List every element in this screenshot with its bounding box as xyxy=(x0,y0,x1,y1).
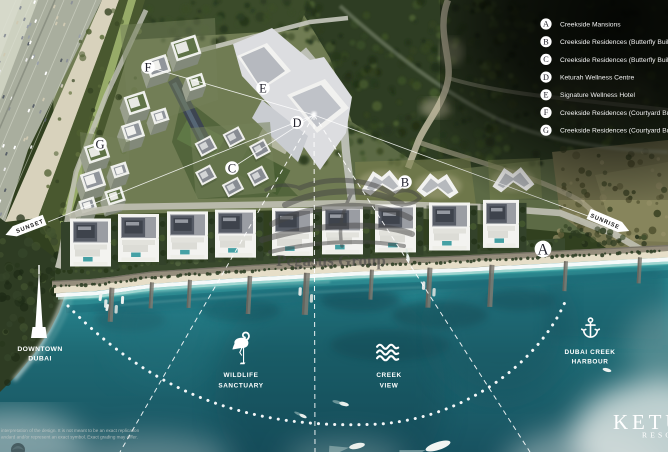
svg-text:C: C xyxy=(228,161,236,175)
svg-text:WILDLIFE: WILDLIFE xyxy=(224,372,259,379)
svg-text:interpretation of the design.: interpretation of the design. It is not … xyxy=(1,428,140,433)
svg-text:Pegasus Group: Pegasus Group xyxy=(276,251,386,270)
svg-text:C: C xyxy=(543,55,549,64)
svg-text:G: G xyxy=(95,137,104,151)
svg-text:Creekside Residences (Courtyar: Creekside Residences (Courtyard Building… xyxy=(560,110,668,117)
svg-text:Keturah Wellness Centre: Keturah Wellness Centre xyxy=(560,75,634,82)
svg-text:Creekside Residences (Courtyar: Creekside Residences (Courtyard Building… xyxy=(560,128,668,135)
svg-text:F: F xyxy=(544,108,549,117)
svg-text:Creekside Mansions: Creekside Mansions xyxy=(560,21,621,28)
svg-text:D: D xyxy=(293,116,302,130)
svg-text:A: A xyxy=(543,20,549,29)
svg-text:DUBAI CREEK: DUBAI CREEK xyxy=(565,349,616,356)
svg-text:RESORT: RESORT xyxy=(642,431,668,440)
svg-text:CREEK: CREEK xyxy=(376,372,401,379)
svg-text:F: F xyxy=(144,60,151,74)
svg-text:B: B xyxy=(401,175,409,189)
svg-text:Signature Wellness Hotel: Signature Wellness Hotel xyxy=(560,92,635,99)
svg-text:G: G xyxy=(543,126,549,135)
svg-text:DUBAI: DUBAI xyxy=(28,356,52,363)
svg-text:B: B xyxy=(543,37,549,46)
svg-text:A: A xyxy=(537,242,549,259)
svg-text:E: E xyxy=(259,81,267,95)
svg-text:E: E xyxy=(543,91,548,100)
svg-text:Creekside Residences (Butterfl: Creekside Residences (Butterfly Building… xyxy=(560,39,668,46)
svg-text:DOWNTOWN: DOWNTOWN xyxy=(17,346,62,353)
svg-text:andard and/or represent an exa: andard and/or represent an exact symbol.… xyxy=(1,435,138,440)
svg-text:SANCTUARY: SANCTUARY xyxy=(218,383,263,390)
svg-text:HARBOUR: HARBOUR xyxy=(572,359,609,366)
svg-text:D: D xyxy=(543,73,549,82)
svg-text:VIEW: VIEW xyxy=(380,383,399,390)
svg-text:Creekside Residences (Butterfl: Creekside Residences (Butterfly Building… xyxy=(560,57,668,64)
